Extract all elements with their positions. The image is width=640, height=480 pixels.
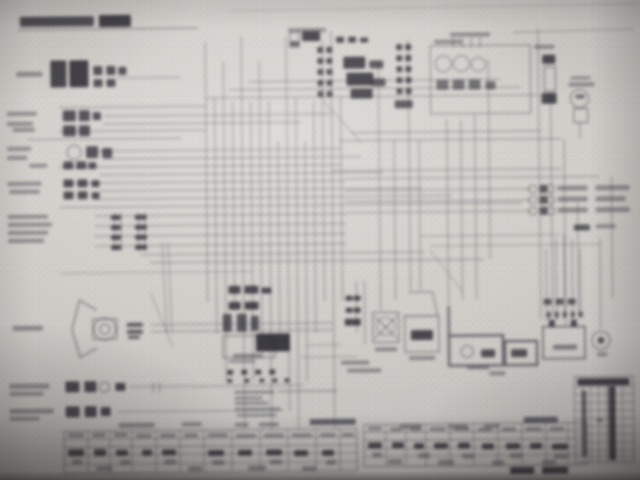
page-tilt-wrapper <box>0 0 640 480</box>
wiring-diagram <box>0 0 640 480</box>
photo-frame <box>0 0 640 480</box>
defocus-blur-layer <box>0 0 640 480</box>
